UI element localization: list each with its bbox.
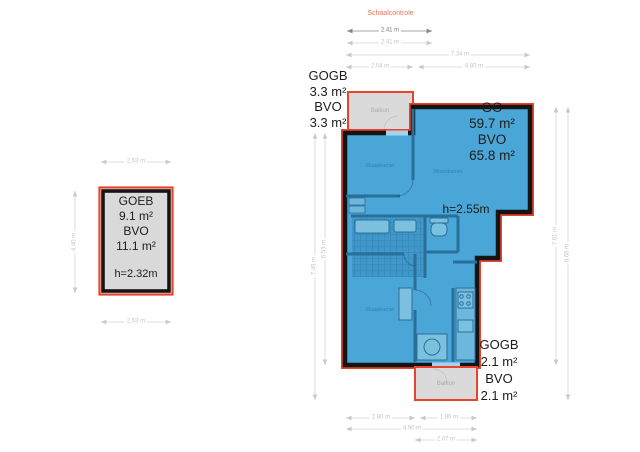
gogb-bottom-bvo-label: BVO: [457, 370, 541, 387]
room-label-living: Woonkamer: [433, 169, 463, 175]
dim-label-top-right: 4.80 m: [463, 64, 485, 71]
balcony-top-area-label: GOGB 3.3 m² BVO 3.3 m²: [300, 68, 356, 130]
closet-nook: [349, 198, 365, 205]
bvo-label: BVO: [454, 132, 530, 148]
balcony-top-name: Balkon: [371, 108, 389, 114]
goeb-ceiling-height: h=2.32m: [104, 268, 168, 280]
dim-label-goeb-top: 2.53 m: [125, 159, 147, 166]
dim-label-goeb-bottom: 2.53 m: [125, 319, 147, 326]
goeb-bvo-label: BVO: [104, 224, 168, 239]
dim-label-bottom-balcony: 2.07 m: [435, 437, 457, 444]
room-label-bedroom-bottom: Slaapkamer: [365, 307, 394, 313]
scale-check-primary-dim: 2.41 m: [379, 28, 401, 35]
dim-label-top-total: 7.34 m: [449, 52, 471, 59]
dim-label-bottom-total: 4.90 m: [401, 426, 423, 433]
balcony-bottom-area-label: GOGB 2.1 m² BVO 2.1 m²: [457, 336, 541, 404]
gogb-top-label: GOGB: [300, 68, 356, 84]
scale-check-secondary-dim: 2.41 m: [379, 40, 401, 47]
washbasin-icon: [394, 220, 416, 232]
dim-label-left-outer: 7.45 m: [312, 255, 319, 277]
gogb-top-area: 3.3 m²: [300, 84, 356, 100]
bvo-area: 65.8 m²: [454, 148, 530, 164]
dim-label-bottom-left: 2.80 m: [370, 415, 392, 422]
dim-label-left-inner: 6.53 m: [322, 238, 329, 260]
balcony-top-door-opening: [386, 131, 408, 136]
kitchen-sink-icon: [458, 320, 473, 332]
bathtub-icon: [355, 220, 389, 233]
dim-label-right-inner: 7.61 m: [553, 225, 560, 247]
gogb-bottom-label: GOGB: [457, 336, 541, 353]
gogb-bottom-bvo-area: 2.1 m²: [457, 387, 541, 404]
scale-check-title: Schaalcontrole: [348, 10, 433, 17]
floorplan-report-page: Schaalcontrole 2.41 m 2.41 m 7.34 m 2.54…: [0, 0, 640, 452]
dim-label-goeb-left: 4.40 m: [72, 231, 79, 253]
washer-icon: [417, 334, 447, 360]
stove-icon: [458, 292, 473, 308]
main-unit-ceiling-height: h=2.55m: [426, 202, 506, 216]
goeb-label: GOEB: [104, 194, 168, 209]
toilet-cistern-icon: [430, 218, 448, 223]
bedroom-closet: [399, 288, 412, 320]
gogb-bottom-area: 2.1 m²: [457, 353, 541, 370]
go-label: GO: [454, 100, 530, 116]
closet-nook: [349, 206, 365, 213]
balcony-bottom-name: Balkon: [437, 381, 455, 387]
dim-label-top-left: 2.54 m: [369, 64, 391, 71]
main-unit-area-label: GO 59.7 m² BVO 65.8 m²: [454, 100, 530, 164]
dim-label-bottom-right: 1.86 m: [438, 415, 460, 422]
dim-label-right-outer: 8.68 m: [565, 242, 572, 264]
gogb-top-bvo-label: BVO: [300, 99, 356, 115]
toilet-icon: [431, 223, 447, 236]
go-area: 59.7 m²: [454, 116, 530, 132]
goeb-area-label: GOEB 9.1 m² BVO 11.1 m²: [104, 194, 168, 254]
goeb-bvo-area: 11.1 m²: [104, 239, 168, 254]
goeb-go-area: 9.1 m²: [104, 209, 168, 224]
gogb-top-bvo-area: 3.3 m²: [300, 115, 356, 131]
room-label-bedroom-top: Slaapkamer: [365, 163, 394, 169]
